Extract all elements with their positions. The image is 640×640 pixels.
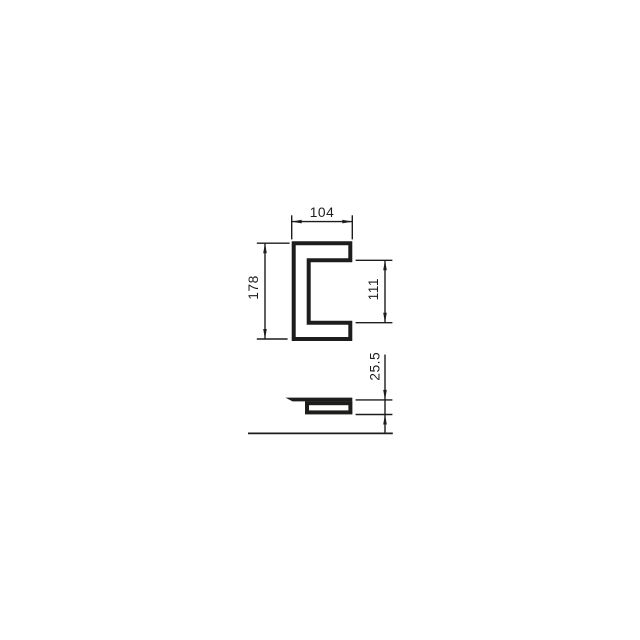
side-view-channel-return <box>307 403 350 412</box>
dim-opening-label: 111 <box>366 278 381 300</box>
dim-depth-label: 25.5 <box>367 352 382 381</box>
dim-width-arrow-left <box>292 220 302 224</box>
dim-depth-arrow-top <box>383 390 387 400</box>
front-view <box>294 243 351 339</box>
side-view-flange-plate <box>286 398 353 402</box>
c-profile-outline <box>294 243 351 339</box>
dimension-opening-height: 111 <box>356 260 393 322</box>
technical-drawing-page: 104 178 111 <box>0 0 640 640</box>
dim-width-label: 104 <box>310 205 335 220</box>
side-view <box>286 398 353 413</box>
dim-opening-arrow-bottom <box>383 313 387 323</box>
dimension-height: 178 <box>246 243 289 339</box>
dim-height-label: 178 <box>246 275 261 300</box>
technical-drawing-canvas: 104 178 111 <box>0 0 640 640</box>
dim-height-arrow-bottom <box>263 329 267 339</box>
dim-depth-arrow-bottom <box>383 415 387 425</box>
dimension-width: 104 <box>292 205 353 240</box>
dim-width-arrow-right <box>342 220 352 224</box>
dim-height-arrow-top <box>263 243 267 253</box>
dimension-depth: 25.5 <box>356 352 393 434</box>
dim-opening-arrow-top <box>383 260 387 270</box>
